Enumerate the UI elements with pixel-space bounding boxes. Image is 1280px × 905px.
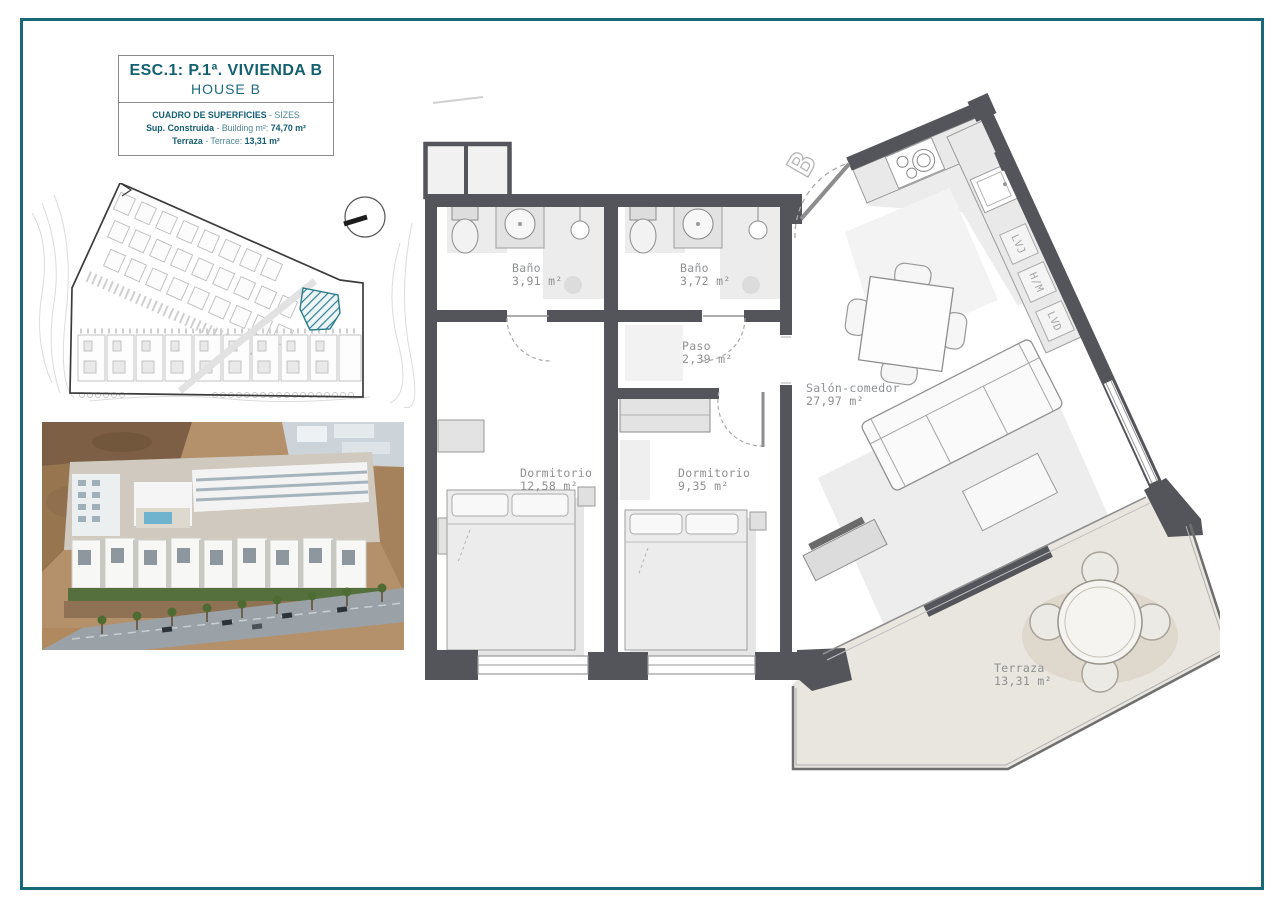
floor-plan: LVJ H/M LVD — [420, 80, 1220, 795]
nightstand-2 — [750, 512, 766, 530]
toilet-2-bowl — [630, 219, 656, 253]
room-label-dormitorio-2: Dormitorio 9,35 m² — [678, 466, 757, 493]
nightstand-1 — [578, 487, 595, 506]
photo-complex — [64, 452, 380, 550]
room-label-paso: Paso 2,39 m² — [682, 339, 733, 366]
room-label-salon: Salón-comedor 27,97 m² — [806, 381, 907, 408]
toilet-1-bowl — [452, 219, 478, 253]
sizes-row-terrace: Terraza - Terrace: 13,31 m² — [121, 135, 331, 148]
photo-townhouses — [72, 538, 366, 588]
plan-sheet: ESC.1: P.1ª. VIVIENDA B HOUSE B CUADRO D… — [0, 0, 1280, 905]
sizes-table: CUADRO DE SUPERFICIES - SIZES Sup. Const… — [118, 103, 334, 156]
title-box: ESC.1: P.1ª. VIVIENDA B HOUSE B — [118, 55, 334, 103]
toilet-1 — [452, 206, 478, 220]
room-label-terraza: Terraza 13,31 m² — [994, 661, 1052, 688]
sizes-row-built: Sup. Construida - Building m²: 74,70 m² — [121, 122, 331, 135]
sizes-header: CUADRO DE SUPERFICIES - SIZES — [121, 109, 331, 122]
aerial-photo — [42, 422, 404, 650]
sheet-title: ESC.1: P.1ª. VIVIENDA B — [121, 61, 331, 81]
title-block: ESC.1: P.1ª. VIVIENDA B HOUSE B CUADRO D… — [118, 55, 334, 156]
sheet-subtitle: HOUSE B — [121, 81, 331, 98]
shower-2-head — [749, 221, 767, 239]
bedroom2-door-arc — [718, 392, 763, 446]
shower-1-head — [571, 221, 589, 239]
north-arrow-icon — [344, 197, 385, 237]
bath1-door-arc — [507, 318, 550, 361]
site-plan — [30, 183, 425, 411]
bedroom-1-furniture — [438, 420, 595, 650]
wardrobe-1 — [438, 420, 484, 452]
toilet-2 — [630, 206, 656, 220]
entrance-marker: B — [780, 146, 825, 184]
light-1 — [564, 276, 582, 294]
light-2 — [742, 276, 760, 294]
bedroom-2-furniture — [620, 398, 766, 650]
unit-location-hatch — [300, 288, 340, 330]
